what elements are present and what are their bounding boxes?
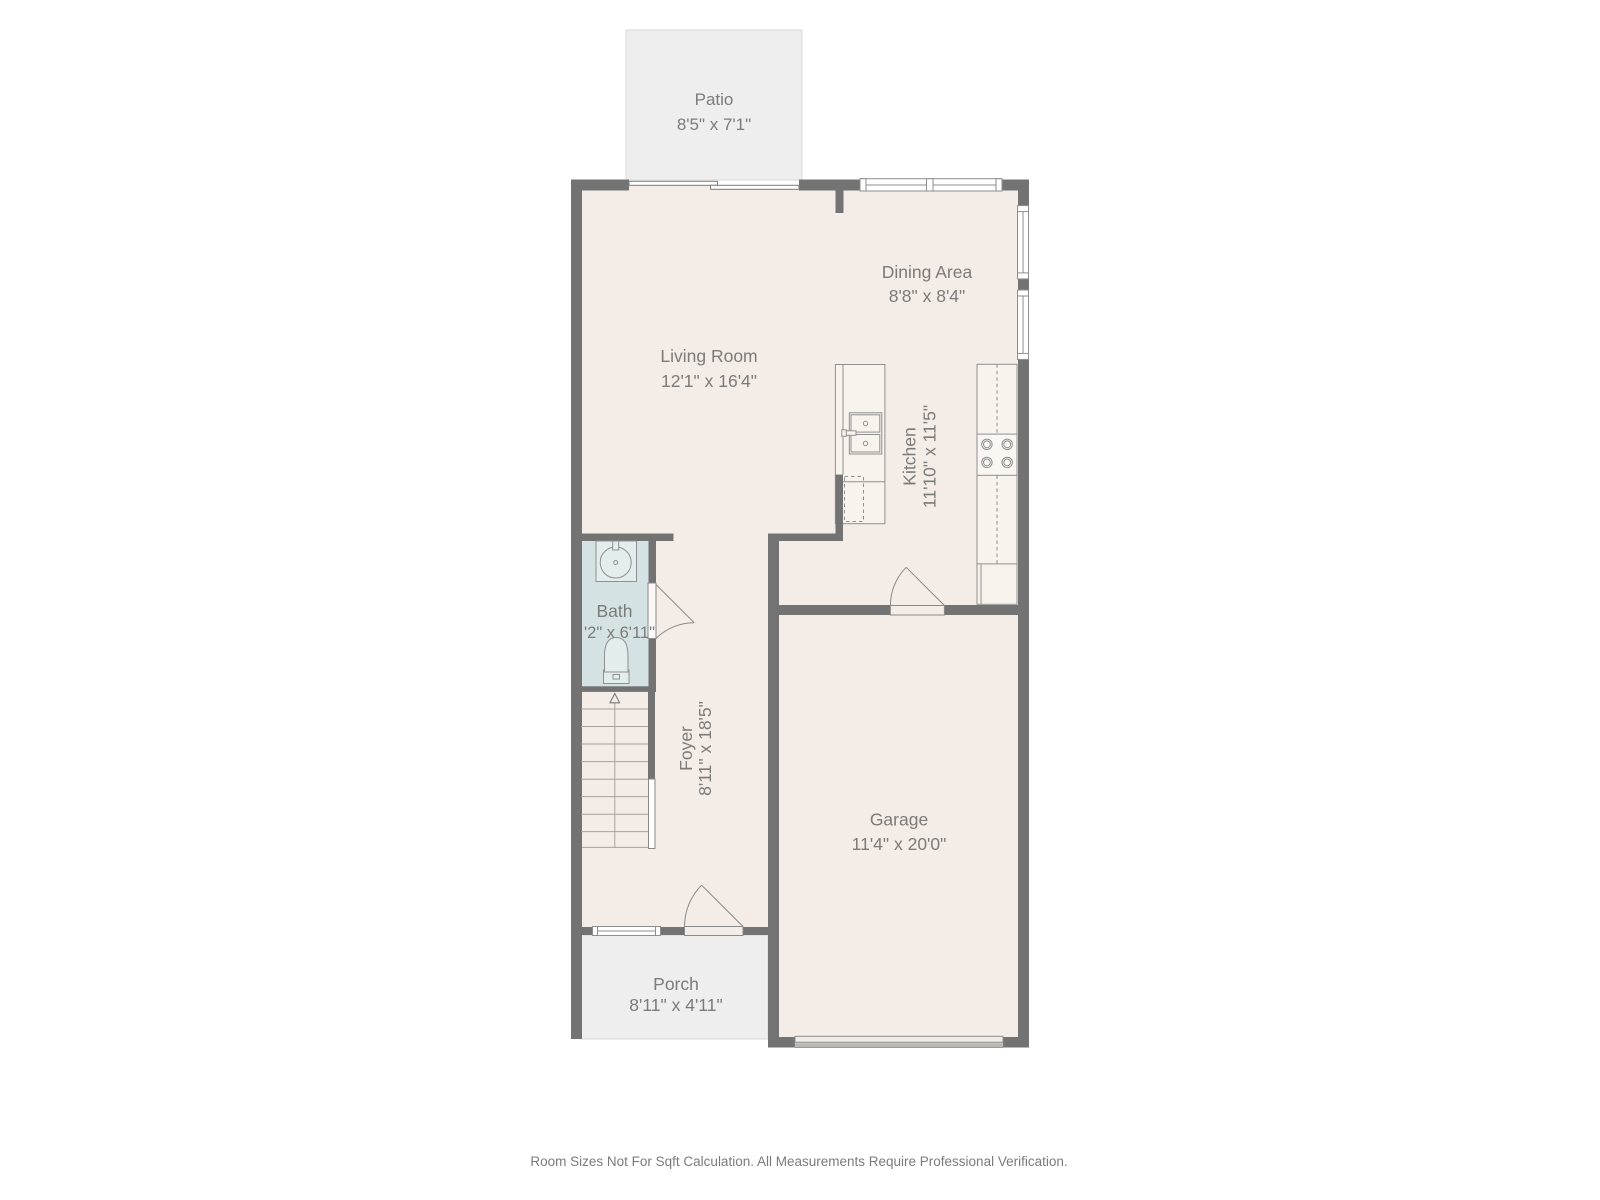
svg-text:'2" x 6'11": '2" x 6'11"	[584, 624, 655, 642]
svg-text:Garage: Garage	[870, 810, 928, 830]
svg-text:Dining Area: Dining Area	[882, 262, 973, 282]
svg-text:Room Sizes Not For Sqft Calcul: Room Sizes Not For Sqft Calculation. All…	[530, 1154, 1067, 1169]
svg-text:Foyer: Foyer	[676, 726, 696, 771]
svg-text:8'8" x 8'4": 8'8" x 8'4"	[889, 286, 966, 306]
svg-text:8'11" x 4'11": 8'11" x 4'11"	[629, 995, 722, 1015]
svg-text:11'4" x 20'0": 11'4" x 20'0"	[852, 834, 947, 854]
svg-text:Living Room: Living Room	[660, 346, 757, 366]
svg-text:Kitchen: Kitchen	[900, 427, 920, 485]
svg-text:Patio: Patio	[695, 90, 734, 109]
svg-text:Porch: Porch	[653, 974, 699, 994]
svg-text:12'1" x 16'4": 12'1" x 16'4"	[661, 371, 757, 391]
svg-text:11'10" x 11'5": 11'10" x 11'5"	[920, 405, 940, 508]
svg-text:Bath: Bath	[597, 601, 633, 621]
svg-text:8'5" x 7'1": 8'5" x 7'1"	[677, 115, 751, 134]
svg-text:8'11" x 18'5": 8'11" x 18'5"	[695, 701, 715, 796]
